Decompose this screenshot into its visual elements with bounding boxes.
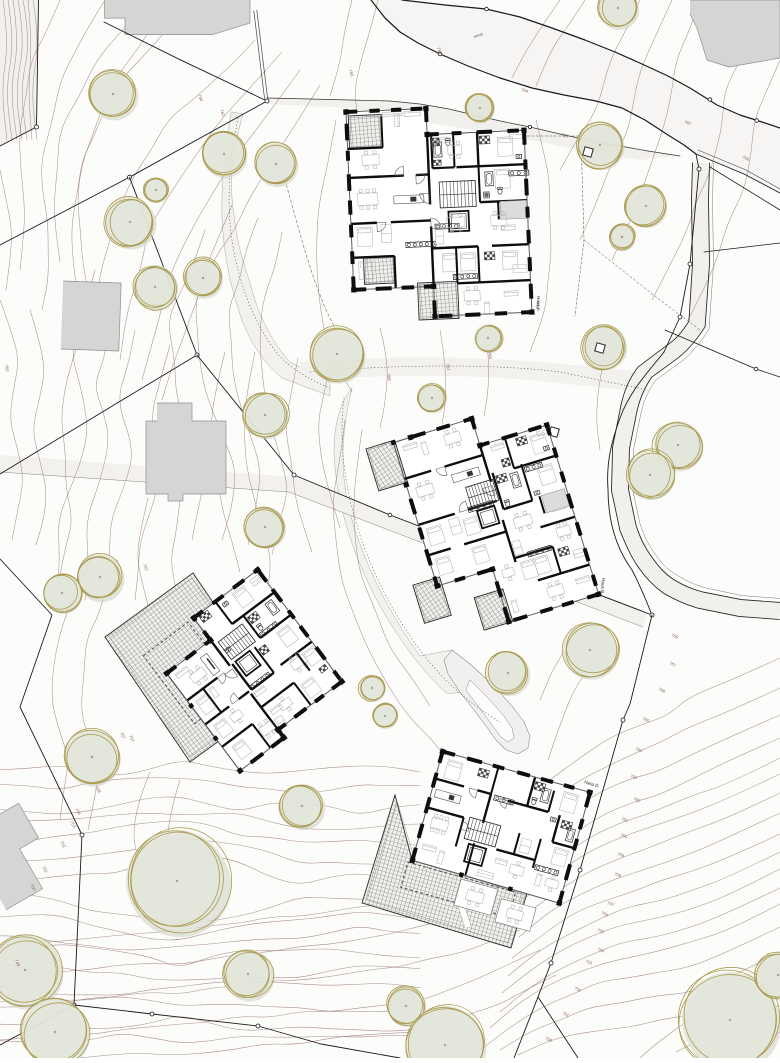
svg-text:Haus A: Haus A: [536, 296, 541, 312]
